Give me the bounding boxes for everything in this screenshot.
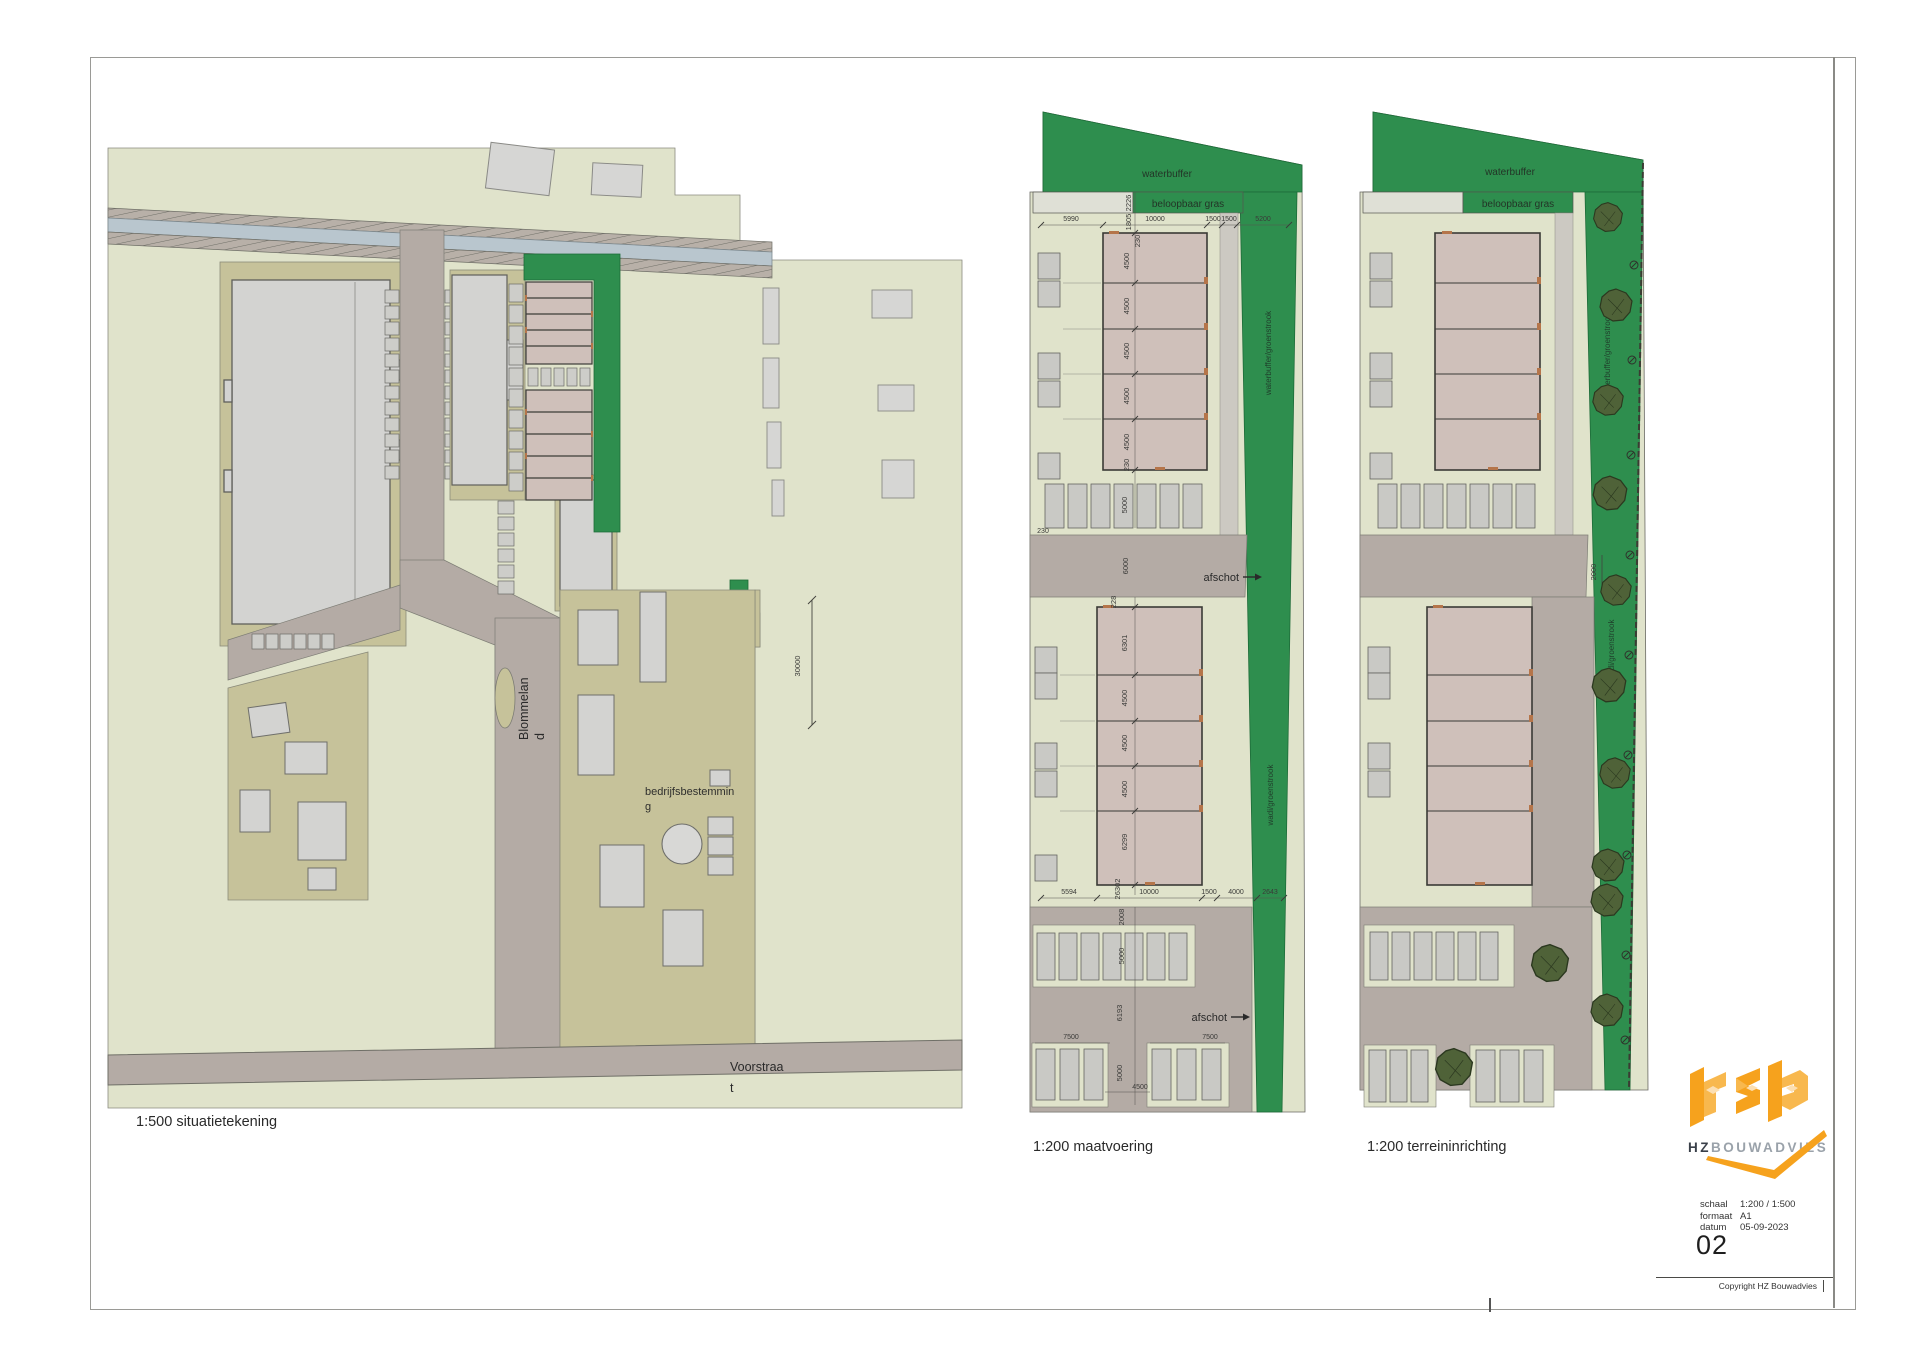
beloopbaar-gras-label: beloopbaar gras	[1482, 199, 1554, 210]
svg-text:230: 230	[1037, 528, 1049, 535]
svg-text:26302: 26302	[1113, 879, 1122, 900]
svg-text:1500: 1500	[1201, 889, 1217, 896]
svg-text:4500: 4500	[1122, 253, 1131, 270]
street-label-blommeland-wrap: d	[533, 733, 547, 740]
road-east	[1532, 597, 1594, 907]
rowhouse-block-south	[1097, 605, 1203, 885]
titleblock-fields: schaal 1:200 / 1:500 formaat A1 datum 05…	[1700, 1199, 1850, 1234]
large-building	[224, 280, 400, 630]
svg-text:5000: 5000	[1120, 497, 1129, 514]
svg-text:4500: 4500	[1120, 781, 1129, 798]
beloopbaar-gras-label: beloopbaar gras	[1152, 199, 1224, 210]
caption-terreininrichting: 1:200 terreininrichting	[1367, 1139, 1506, 1155]
central-building	[452, 275, 507, 485]
svg-text:5594: 5594	[1061, 889, 1077, 896]
caption-situatietekening: 1:500 situatietekening	[136, 1114, 277, 1130]
svg-text:5200: 5200	[1255, 216, 1271, 223]
rowhouse-block-north	[1435, 231, 1541, 470]
area-label-wrap: g	[645, 801, 651, 813]
field-label: formaat	[1700, 1211, 1740, 1223]
street-label-voorstraat-wrap: t	[730, 1081, 734, 1095]
hzb-logo-icon: HZBOUWADVIES	[1686, 1060, 1836, 1185]
svg-text:6299: 6299	[1120, 834, 1129, 851]
svg-text:230: 230	[1133, 235, 1142, 248]
traffic-island	[495, 668, 515, 728]
svg-text:10000: 10000	[1145, 216, 1165, 223]
field-label: schaal	[1700, 1199, 1740, 1211]
logo-letter-z	[1736, 1068, 1760, 1114]
brand-hz: HZ	[1688, 1140, 1711, 1155]
svg-text:4500: 4500	[1122, 343, 1131, 360]
logo-letter-h	[1690, 1067, 1726, 1127]
svg-text:2008: 2008	[1117, 909, 1126, 926]
street-label-blommeland: Blommelan	[517, 677, 531, 740]
svg-text:2000: 2000	[1589, 564, 1598, 581]
svg-text:7500: 7500	[1202, 1034, 1218, 1041]
plan-maatvoering: waterbuffer beloopbaar gras waterbuffer/…	[1005, 105, 1325, 1165]
svg-text:4000: 4000	[1228, 889, 1244, 896]
caption-maatvoering: 1:200 maatvoering	[1033, 1139, 1153, 1155]
copyright-text: Copyright HZ Bouwadvies	[1719, 1281, 1817, 1291]
sheet-number: 02	[1696, 1230, 1728, 1261]
rowhouse-block-1	[526, 282, 592, 364]
company-logo: HZBOUWADVIES	[1686, 1060, 1836, 1185]
svg-text:6000: 6000	[1121, 558, 1130, 575]
large-parcel-west	[220, 262, 406, 646]
plan-situatietekening: bedrijfsbestemmin g Voorstraa t 30000 Bl…	[100, 140, 980, 1140]
svg-text:afschot: afschot	[1192, 1012, 1227, 1024]
svg-text:5000: 5000	[1115, 1065, 1124, 1082]
svg-text:228: 228	[1109, 596, 1118, 609]
svg-text:5000: 5000	[1117, 948, 1126, 965]
rowhouse-block-north	[1103, 231, 1208, 470]
street-label-voorstraat: Voorstraa	[730, 1060, 784, 1074]
svg-text:6193: 6193	[1115, 1005, 1124, 1022]
logo-letter-b	[1768, 1060, 1808, 1122]
svg-text:4500: 4500	[1120, 735, 1129, 752]
field-value: 1:200 / 1:500	[1740, 1199, 1795, 1211]
svg-text:1500: 1500	[1221, 216, 1237, 223]
svg-text:10000: 10000	[1139, 889, 1159, 896]
waterbuffer-label: waterbuffer	[1141, 169, 1193, 180]
rowhouse-block-south	[1427, 605, 1533, 885]
svg-text:30000: 30000	[793, 656, 802, 677]
svg-text:afschot: afschot	[1204, 572, 1239, 584]
copyright-bar: Copyright HZ Bouwadvies	[1656, 1277, 1833, 1294]
svg-text:4500: 4500	[1122, 388, 1131, 405]
svg-text:4500: 4500	[1122, 434, 1131, 451]
field-value: A1	[1740, 1211, 1752, 1223]
svg-text:5990: 5990	[1063, 216, 1079, 223]
road-middle	[1030, 535, 1247, 597]
svg-text:4500: 4500	[1120, 690, 1129, 707]
svg-text:4500: 4500	[1132, 1084, 1148, 1091]
svg-text:6301: 6301	[1120, 635, 1129, 652]
waterbuffer-label: waterbuffer	[1484, 167, 1536, 178]
field-value: 05-09-2023	[1740, 1222, 1789, 1234]
plan-terreininrichting: waterbuffer beloopbaar gras waterbuffer/…	[1350, 105, 1670, 1165]
field-schaal: schaal 1:200 / 1:500	[1700, 1199, 1850, 1211]
svg-text:230: 230	[1122, 459, 1131, 472]
svg-text:1500: 1500	[1205, 216, 1221, 223]
drawing-sheet: bedrijfsbestemmin g Voorstraa t 30000 Bl…	[0, 0, 1920, 1356]
field-formaat: formaat A1	[1700, 1211, 1850, 1223]
svg-text:4500: 4500	[1122, 298, 1131, 315]
sheet-fold-mark	[1489, 1298, 1491, 1312]
svg-text:1805: 1805	[1124, 214, 1133, 231]
road-middle	[1360, 535, 1588, 597]
svg-text:7500: 7500	[1063, 1034, 1079, 1041]
storage-tank	[662, 824, 702, 864]
svg-text:2226: 2226	[1124, 195, 1133, 212]
rowhouse-block-2	[526, 390, 592, 500]
strip-upper-label: waterbuffer/groenstrook	[1264, 310, 1273, 396]
path-strip	[1220, 213, 1238, 540]
khaki-area-west	[228, 652, 368, 900]
svg-text:2643: 2643	[1262, 889, 1278, 896]
path-strip	[1555, 213, 1573, 535]
copyright-tick	[1823, 1280, 1824, 1292]
strip-lower-label: wadi/groenstrook	[1266, 764, 1275, 827]
area-label: bedrijfsbestemmin	[645, 786, 734, 798]
